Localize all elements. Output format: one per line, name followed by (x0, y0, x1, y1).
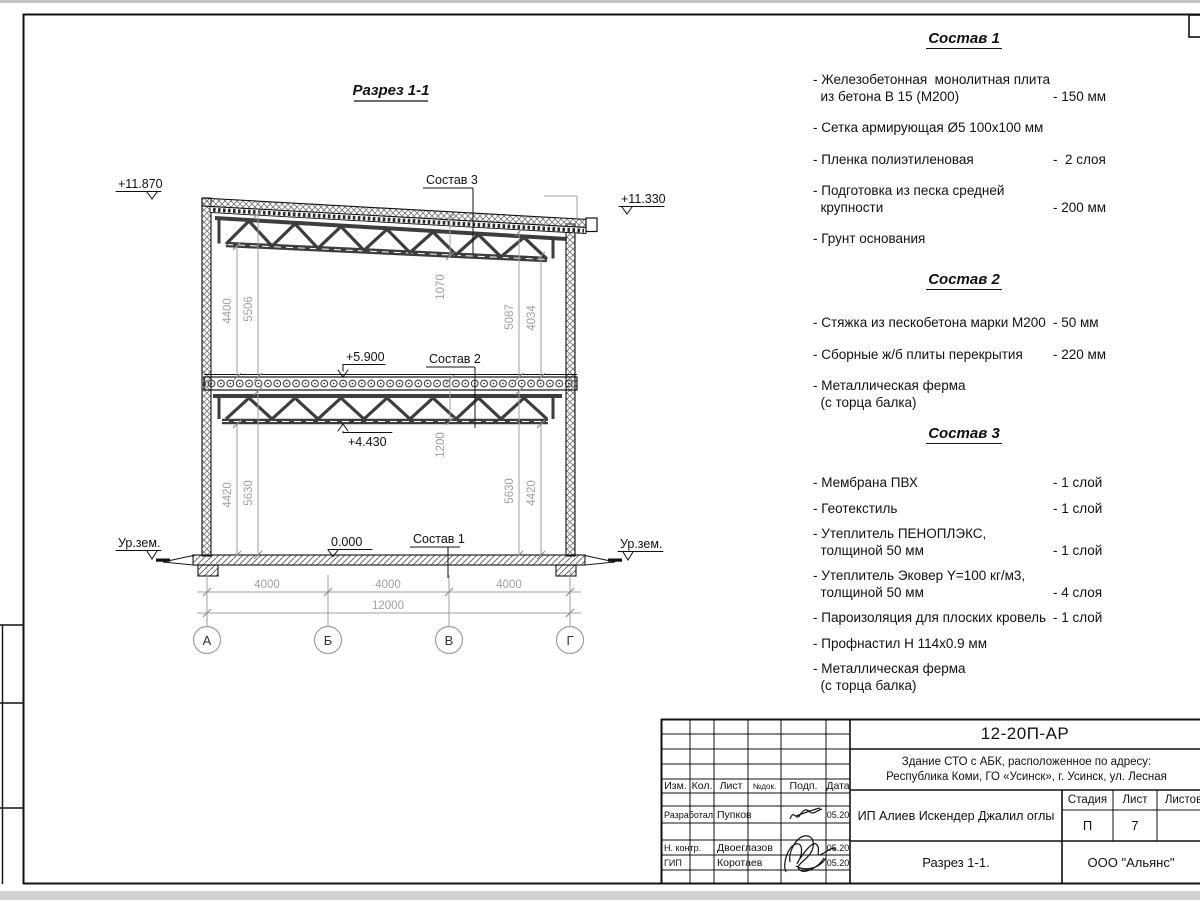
stage-value: П (1062, 810, 1113, 841)
floor-truss (213, 396, 562, 422)
dim-5087: 5087 (504, 304, 516, 330)
dim-5630-right: 5630 (504, 478, 516, 504)
company-name: ООО "Альянс" (1062, 841, 1200, 884)
list-item: - Геотекстиль- 1 слой (813, 501, 1115, 518)
signature-pupkov (790, 808, 822, 819)
list-item: - Мембрана ПВХ- 1 слой (813, 475, 1115, 492)
row-name: Коротаев (714, 855, 784, 870)
elev-roof-right: +11.330 (621, 192, 666, 206)
sheets-value (1157, 810, 1200, 841)
col-header-podp: Подп. (781, 779, 826, 793)
list-item: - Сборные ж/б плиты перекрытия- 220 мм (813, 347, 1115, 364)
dim-5506: 5506 (243, 296, 255, 322)
row-name: Пупков (714, 806, 784, 823)
axis-a: А (203, 633, 212, 648)
elev-zero: 0.000 (331, 535, 362, 549)
row-role: Разработал (661, 806, 717, 823)
drawing-sheet: { "drawing": { "title": "Разрез 1-1", "e… (0, 0, 1200, 900)
sheet-value: 7 (1113, 810, 1157, 841)
list-item: - Железобетонная монолитная плита из бет… (813, 72, 1115, 105)
ground-level-right: Ур.зем. (620, 537, 662, 551)
list-item: - Металлическая ферма (с торца балка) (813, 378, 1115, 411)
axis-v: В (445, 633, 454, 648)
sheets-label: Листов (1157, 790, 1200, 810)
leader-sostav2: Состав 2 (429, 352, 481, 366)
list-2-title: Состав 2 (813, 271, 1115, 288)
ground-level-left: Ур.зем. (118, 536, 160, 550)
row-name: Двоеглазов (714, 840, 784, 855)
list-item: - Пароизоляция для плоских кровель- 1 сл… (813, 610, 1115, 627)
roof-end-cap (586, 218, 597, 232)
dim-4034: 4034 (526, 305, 538, 331)
list-item: - Металлическая ферма (с торца балка) (813, 661, 1115, 694)
leader-sostav3: Состав 3 (426, 173, 478, 187)
foundation-left (198, 565, 218, 576)
list-item: - Сетка армирующая Ø5 100х100 мм (813, 120, 1115, 137)
dim-4420-left: 4420 (222, 482, 234, 508)
col-header-ndok: №док. (748, 779, 781, 793)
list-item: - Грунт основания (813, 231, 1115, 248)
elev-floor2: +5.900 (346, 350, 385, 364)
col-header-izm: Изм. (661, 779, 690, 793)
dim-5630-left: 5630 (243, 480, 255, 506)
list-item: - Пленка полиэтиленовая- 2 слоя (813, 152, 1115, 169)
ground-slab (156, 555, 622, 576)
elev-roof-left: +11.870 (118, 177, 163, 191)
corner-stamp-box (1189, 15, 1200, 37)
dim-4400: 4400 (222, 298, 234, 324)
list-item: - Профнастил Н 114х0.9 мм (813, 636, 1115, 653)
row-date: 05.20 (826, 855, 850, 870)
dim-span-1: 4000 (254, 579, 280, 591)
dim-span-2: 4000 (375, 579, 401, 591)
row-date: 05.20 (826, 806, 850, 823)
view-name: Разрез 1-1. (850, 841, 1062, 884)
project-description: Здание СТО с АБК, расположенное по адрес… (853, 749, 1200, 790)
leader-sostav1: Состав 1 (413, 532, 465, 546)
dim-total: 12000 (372, 600, 404, 612)
view-title-text: Разрез 1-1 (352, 82, 429, 99)
floor-slab (204, 375, 577, 391)
list-item: - Подготовка из песка средней крупности-… (813, 183, 1115, 216)
sheet-label: Лист (1113, 790, 1157, 810)
client-name: ИП Алиев Искендер Джалил оглы (850, 790, 1062, 841)
elev-truss: +4.430 (348, 435, 387, 449)
row-role: ГИП (661, 855, 717, 870)
dim-1200: 1200 (435, 432, 447, 458)
list-item: - Стяжка из пескобетона марки М200- 50 м… (813, 315, 1115, 332)
composition-list-2: Состав 2 - Стяжка из пескобетона марки М… (813, 271, 1115, 426)
dims-spans: 4000 4000 4000 12000 (197, 571, 581, 627)
axis-b: Б (324, 633, 333, 648)
composition-list-3: Состав 3 - Мембрана ПВХ- 1 слой - Геотек… (813, 425, 1115, 703)
dim-4420-right: 4420 (526, 480, 538, 506)
doc-number: 12-20П-АР (850, 719, 1200, 749)
col-header-kol: Кол. (690, 779, 714, 793)
dim-1070: 1070 (435, 274, 447, 300)
row-role: Н. контр. (661, 840, 717, 855)
col-header-data: Дата (826, 779, 850, 793)
hollow-core-slab (204, 377, 577, 390)
axis-g: Г (566, 633, 573, 648)
stage-label: Стадия (1062, 790, 1113, 810)
row-date: 05.20 (826, 840, 850, 855)
list-item: - Утеплитель ПЕНОПЛЭКС, толщиной 50 мм- … (813, 526, 1115, 559)
axis-bubbles: А Б В Г (194, 627, 584, 654)
col-header-list: Лист (714, 779, 748, 793)
foundation-right (556, 565, 576, 576)
dim-span-3: 4000 (496, 579, 522, 591)
list-3-title: Состав 3 (813, 425, 1115, 442)
section-title: Разрез 1-1 (352, 82, 429, 101)
list-item: - Утеплитель Эковер Y=100 кг/м3, толщино… (813, 568, 1115, 601)
list-1-title: Состав 1 (813, 30, 1115, 47)
composition-list-1: Состав 1 - Железобетонная монолитная пли… (813, 30, 1115, 263)
